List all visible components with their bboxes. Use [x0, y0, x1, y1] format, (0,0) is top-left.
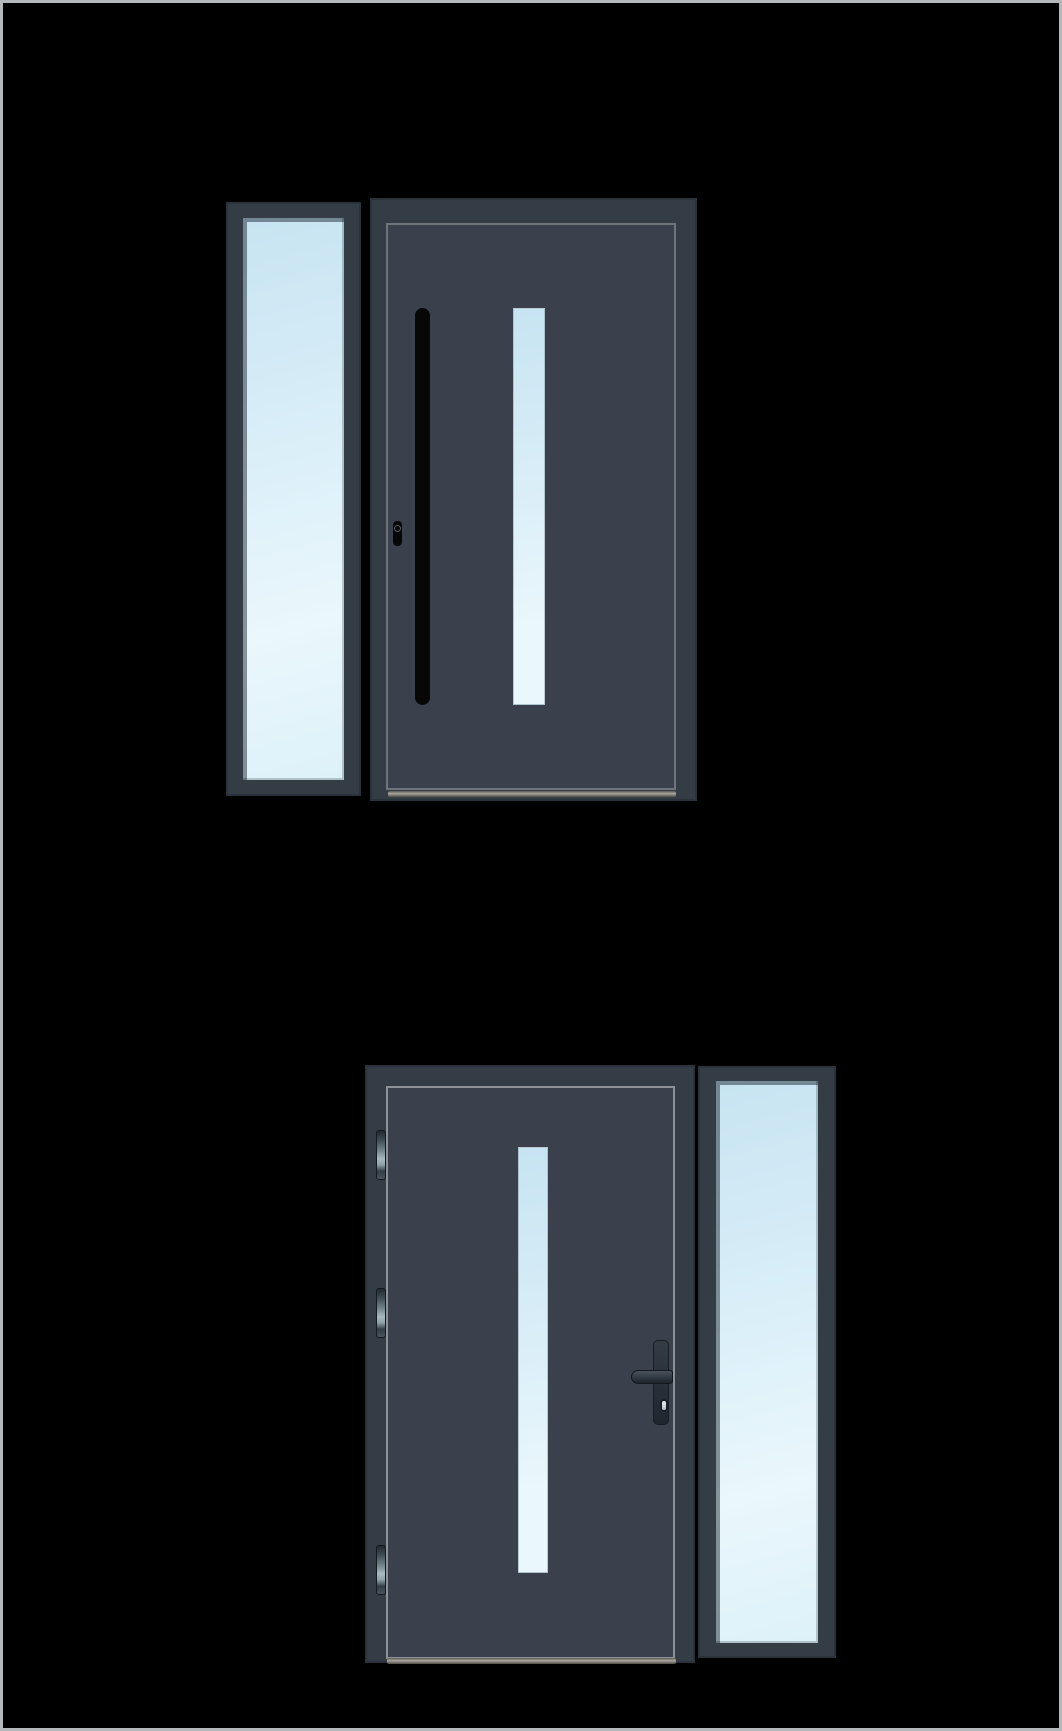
- door-leaf-top: [370, 198, 697, 801]
- pull-handle-bar: [415, 308, 430, 705]
- door-top-threshold: [388, 791, 676, 797]
- keyhole-cylinder-bottom: [660, 1399, 668, 1412]
- door-bottom-glass-strip: [518, 1147, 548, 1573]
- keyhole-cylinder-top: [393, 521, 402, 546]
- sidelight-right-frame: [698, 1066, 836, 1658]
- hinge-bottom-icon: [376, 1545, 386, 1595]
- door-leaf-bottom: [365, 1065, 695, 1663]
- lever-handle: [631, 1370, 673, 1384]
- door-top-glass-strip: [513, 308, 545, 705]
- sidelight-left-frame: [226, 202, 361, 796]
- hinge-middle-icon: [376, 1288, 386, 1338]
- hinge-top-icon: [376, 1130, 386, 1180]
- sidelight-right-glass: [716, 1081, 818, 1643]
- sidelight-left-glass: [243, 218, 344, 780]
- keyhole-ring-icon: [394, 525, 401, 532]
- door-configurator-canvas: [0, 0, 1062, 1731]
- door-bottom-threshold: [387, 1658, 676, 1664]
